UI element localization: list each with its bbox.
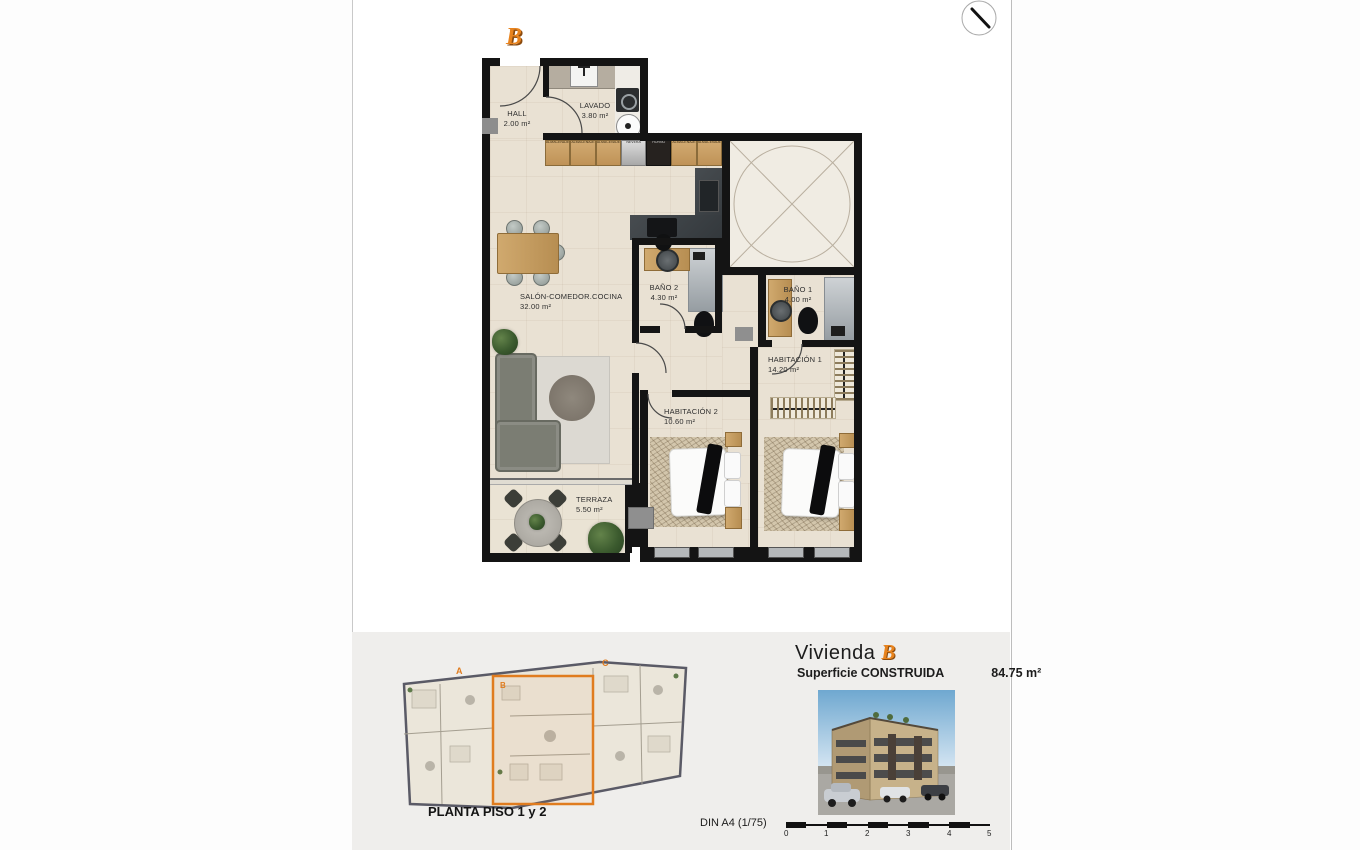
site-plan-minimap: A B C [390, 656, 692, 812]
room-area: 5.50 m² [576, 505, 603, 514]
window-sill [768, 547, 804, 558]
cabinet: ALMACENAJE [570, 140, 595, 166]
room-area: 14.20 m² [768, 365, 799, 374]
cabinet: ALMACENAJE [697, 140, 722, 166]
room-name: LAVADO [580, 101, 611, 110]
wall [545, 133, 640, 140]
floorplan-unit-b: ALMACENAJE ALMACENAJE ALMACENAJE NEVERA … [482, 45, 912, 565]
sofa-horizontal [495, 420, 561, 472]
unit-title-letter: B [881, 640, 896, 664]
unit-title-text: Vivienda [795, 642, 875, 664]
unit-title: Vivienda B [795, 640, 896, 665]
round-rug [549, 375, 595, 421]
wall [640, 133, 862, 141]
bed2-headboard [725, 507, 742, 529]
bath1-toilet [798, 307, 818, 334]
unit-mark-a: A [456, 666, 463, 676]
wall [854, 133, 862, 562]
room-area: 4.00 m² [785, 295, 812, 304]
bath2-toilet [694, 311, 714, 337]
wall [632, 238, 722, 245]
room-name: BAÑO 1 [784, 285, 813, 294]
scale-tick: 3 [906, 829, 910, 838]
room-name: HALL [507, 109, 527, 118]
wall [685, 326, 722, 333]
room-area: 4.30 m² [651, 293, 678, 302]
brochure-page: B [0, 0, 1360, 850]
room-area: 2.00 m² [504, 119, 531, 128]
wardrobe-horizontal [770, 397, 836, 419]
cabinet-label: HORNO [647, 141, 670, 145]
room-name: TERRAZA [576, 495, 612, 504]
unit-badge: B [506, 24, 522, 51]
bed1-pillow [838, 481, 855, 508]
window-sill [814, 547, 850, 558]
scale-tick: 4 [947, 829, 951, 838]
wall [640, 58, 648, 141]
room-label-hab2: HABITACIÓN 2 10.60 m² [664, 407, 718, 427]
room-label-terraza: TERRAZA 5.50 m² [576, 495, 612, 515]
scale-bar: DIN A4 (1/75) 0 1 2 3 4 5 [700, 816, 1000, 842]
room-area: 3.80 m² [582, 111, 609, 120]
wall [543, 58, 549, 97]
cabinet-label: ALMACENAJE [546, 141, 569, 145]
wall [722, 141, 730, 267]
wall [540, 58, 648, 66]
scale-tick: 5 [987, 829, 991, 838]
room-name: SALÓN-COMEDOR.COCINA [520, 292, 622, 301]
dining-table [497, 233, 559, 274]
cabinet: ALMACENAJE [545, 140, 570, 166]
wall [632, 333, 639, 343]
site-plan-caption: PLANTA PISO 1 y 2 [428, 804, 546, 819]
terrace-slider-window [490, 478, 632, 485]
room-name: HABITACIÓN 2 [664, 407, 718, 416]
cabinet-label: ALMACENAJE [597, 141, 620, 145]
bed1-pillow [838, 453, 855, 480]
laundry-sink [570, 63, 598, 87]
room-label-bano1: BAÑO 1 4.00 m² [770, 285, 826, 305]
cabinet-fridge: NEVERA [621, 140, 646, 166]
wall [490, 553, 630, 562]
bath2-sink [656, 249, 679, 272]
unit-mark-b: B [500, 681, 506, 690]
scale-label: DIN A4 (1/75) [700, 817, 767, 829]
wall [758, 275, 766, 340]
wall [672, 390, 750, 397]
wall [722, 267, 862, 275]
room-area: 10.60 m² [664, 417, 695, 426]
stair-shaft [730, 141, 854, 267]
cabinet-label: ALMACENAJE [672, 141, 695, 145]
window-sill [654, 547, 690, 558]
cabinet-oven: HORNO [646, 140, 671, 166]
bath1-shower [824, 277, 856, 341]
cabinet: ALMACENAJE [671, 140, 696, 166]
scale-bar-graphic [786, 822, 990, 828]
room-label-bano2: BAÑO 2 4.30 m² [642, 283, 686, 303]
room-label-hab1: HABITACIÓN 1 14.20 m² [768, 355, 822, 375]
wall [802, 340, 858, 347]
bed2-headboard [725, 432, 742, 447]
cabinet: ALMACENAJE [596, 140, 621, 166]
room-label-hall: HALL 2.00 m² [492, 109, 542, 129]
cabinet-label: ALMACENAJE [698, 141, 721, 145]
building-photo [818, 690, 955, 815]
ac-unit [628, 507, 654, 529]
room-label-lavado: LAVADO 3.80 m² [567, 101, 623, 121]
scale-tick: 2 [865, 829, 869, 838]
wall [758, 340, 772, 347]
surface-line: Superficie CONSTRUIDA 84.75 m² [797, 666, 1041, 680]
bed2-pillow [724, 480, 741, 507]
door-mat [735, 327, 753, 341]
wardrobe-vertical [834, 349, 856, 401]
scale-tick: 0 [784, 829, 788, 838]
room-area: 32.00 m² [520, 302, 551, 311]
wall [715, 241, 722, 333]
unit-mark-c: C [602, 658, 609, 668]
cabinet-label: NEVERA [622, 141, 645, 145]
surface-value: 84.75 m² [991, 666, 1041, 680]
north-orientation-icon [957, 0, 1003, 42]
scale-tick: 1 [824, 829, 828, 838]
kitchen-counter-horizontal [630, 215, 722, 240]
room-name: BAÑO 2 [650, 283, 679, 292]
wall [632, 238, 639, 333]
plant [492, 329, 518, 355]
room-label-salon: SALÓN-COMEDOR.COCINA 32.00 m² [520, 292, 622, 312]
wall [750, 347, 758, 547]
plant [529, 514, 545, 530]
wall [640, 326, 660, 333]
surface-label: Superficie CONSTRUIDA [797, 666, 944, 680]
wall [632, 373, 639, 483]
cabinet-label: ALMACENAJE [571, 141, 594, 145]
kitchen-cabinet-row: ALMACENAJE ALMACENAJE ALMACENAJE NEVERA … [545, 140, 722, 166]
bed2-pillow [724, 452, 741, 479]
window-sill [698, 547, 734, 558]
room-name: HABITACIÓN 1 [768, 355, 822, 364]
